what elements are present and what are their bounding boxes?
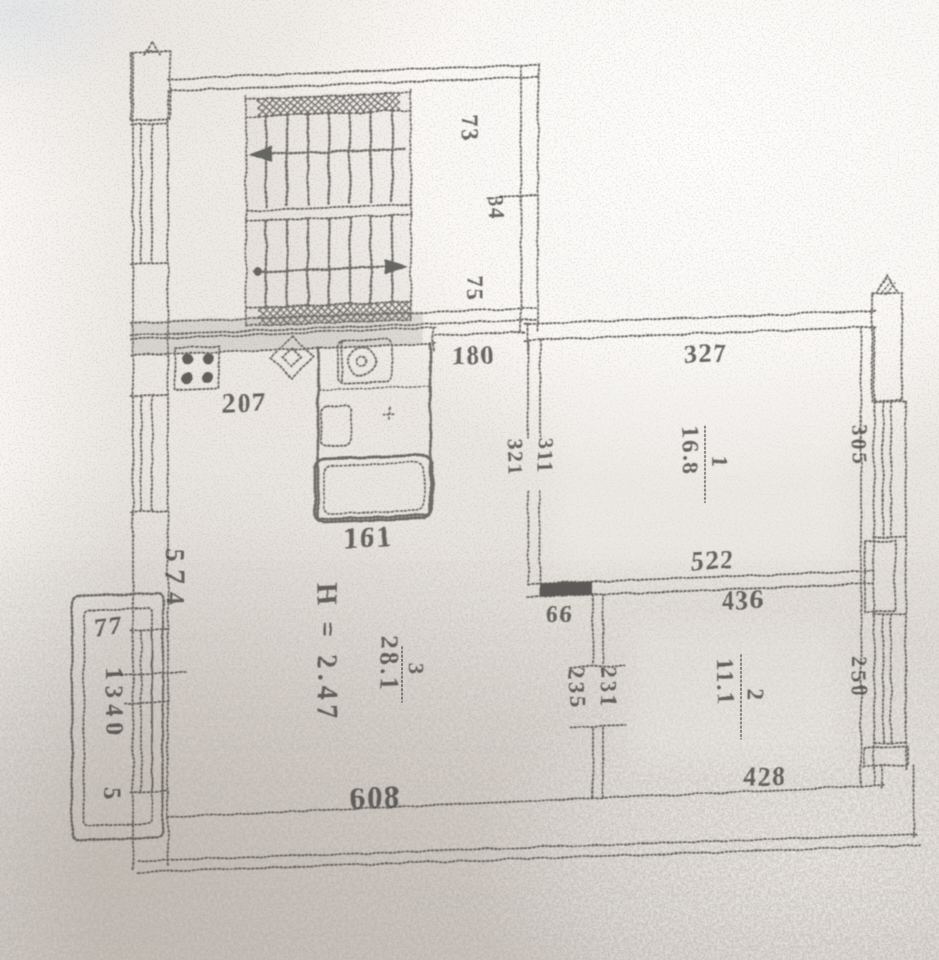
svg-text:608: 608 [349,778,401,816]
svg-text:180: 180 [452,340,495,371]
svg-text:250: 250 [847,656,872,699]
svg-text:73: 73 [456,115,482,143]
svg-text:321: 321 [503,438,528,476]
svg-text:207: 207 [222,387,267,419]
svg-text:574: 574 [160,548,190,614]
svg-text:305: 305 [847,424,872,467]
svg-text:327: 327 [684,338,727,369]
svg-text:161: 161 [343,520,392,555]
svg-text:436: 436 [721,585,764,616]
svg-text:428: 428 [743,761,786,792]
svg-text:66: 66 [546,601,573,628]
svg-text:522: 522 [691,545,734,576]
svg-text:3: 3 [404,663,429,676]
svg-text:311: 311 [533,437,558,474]
svg-text:16.8: 16.8 [676,425,702,476]
svg-text:2: 2 [743,688,768,701]
svg-text:231: 231 [596,666,621,710]
svg-text:235: 235 [564,667,589,711]
svg-text:34: 34 [484,195,509,221]
svg-text:11.1: 11.1 [711,657,737,707]
svg-text:28.1: 28.1 [375,635,404,694]
svg-text:75: 75 [461,275,487,303]
svg-text:H = 2.47: H = 2.47 [311,582,342,724]
svg-text:77: 77 [93,610,124,642]
svg-text:5: 5 [98,787,124,802]
svg-text:1: 1 [707,455,732,468]
svg-text:1340: 1340 [100,666,127,741]
